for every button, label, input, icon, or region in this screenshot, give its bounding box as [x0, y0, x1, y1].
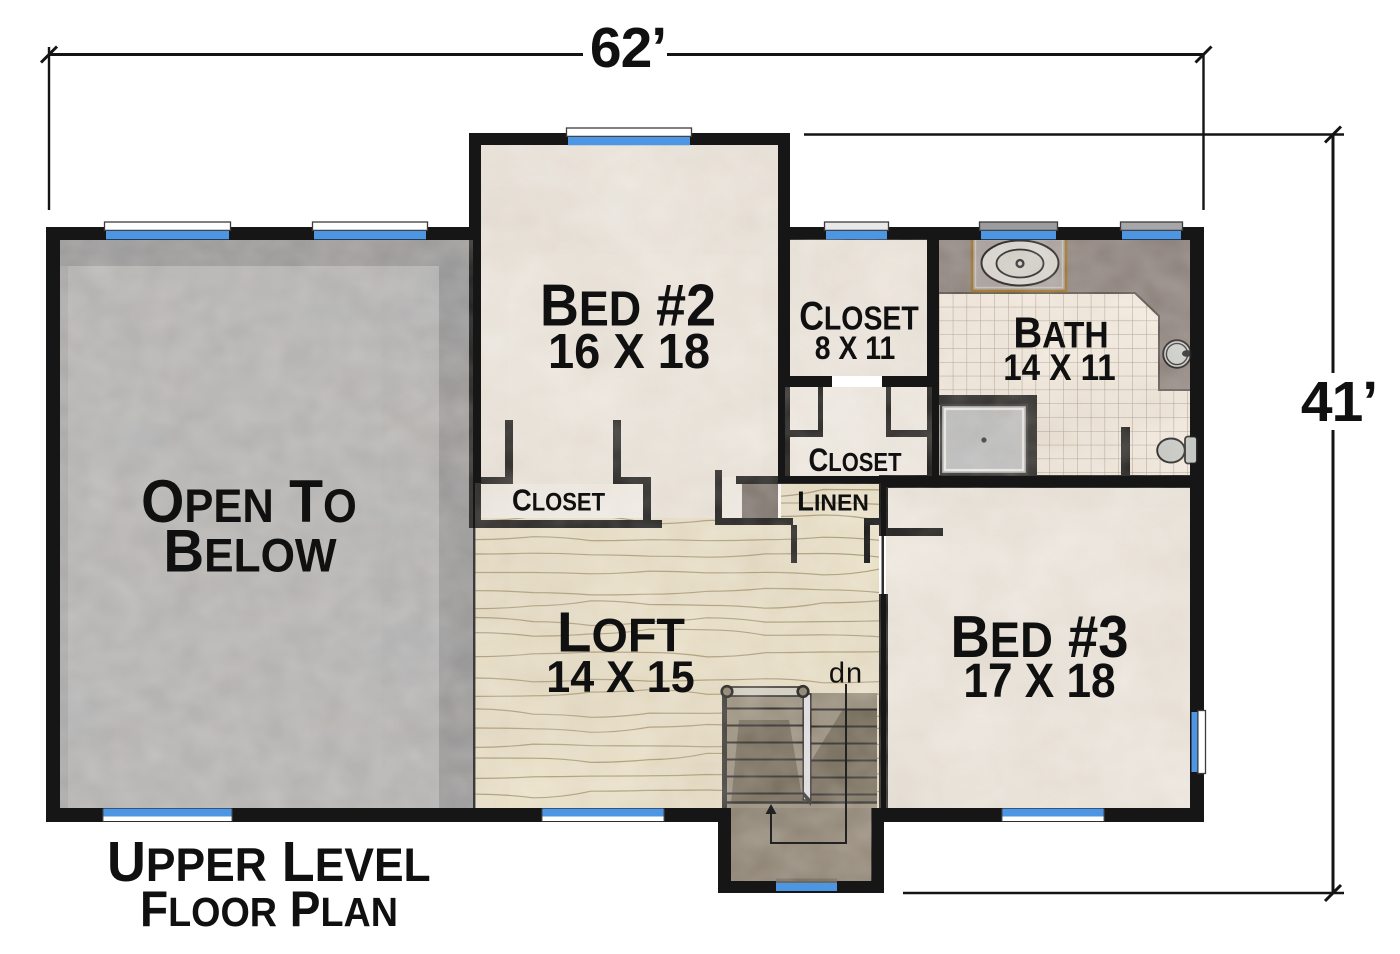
svg-text:16 X 18: 16 X 18 — [548, 325, 710, 379]
svg-text:62’: 62’ — [590, 16, 666, 80]
svg-text:17 X 18: 17 X 18 — [963, 653, 1115, 707]
svg-text:8 X 11: 8 X 11 — [815, 330, 895, 366]
svg-text:LINEN: LINEN — [797, 486, 869, 517]
svg-text:14 X 11: 14 X 11 — [1003, 346, 1116, 388]
svg-text:CLOSET: CLOSET — [512, 484, 605, 518]
svg-text:41’: 41’ — [1301, 370, 1377, 434]
svg-text:FLOOR PLAN: FLOOR PLAN — [140, 882, 398, 937]
svg-text:14 X 15: 14 X 15 — [546, 652, 694, 702]
svg-text:CLOSET: CLOSET — [809, 443, 902, 478]
